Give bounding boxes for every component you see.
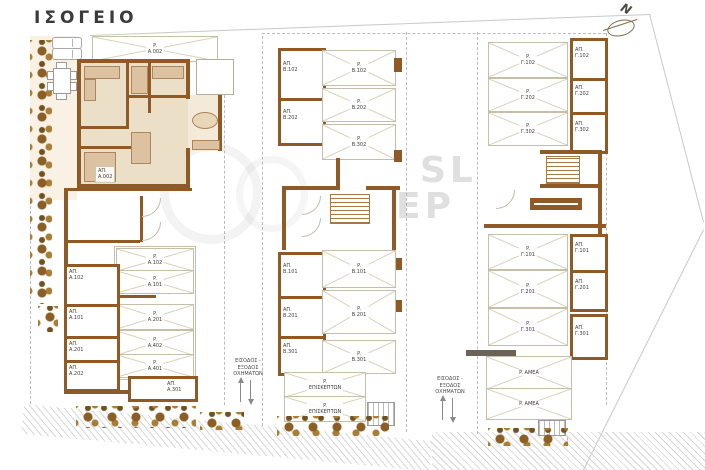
parking-space-b202: P. Β.202: [322, 88, 396, 122]
parking-space-amea-1: P. ΑΜΕΑ: [486, 356, 572, 390]
storage-room-b102: ΑΠ. Β.102: [278, 48, 326, 104]
watermark-ring2-icon: [236, 156, 308, 232]
wall-segment: [148, 63, 151, 113]
furniture-bed: [152, 66, 184, 79]
storage-room-a202: ΑΠ. A.202: [64, 360, 120, 392]
vehicle-entrance-label-right: ΕΙΣΟΔΟΣ - ΕΞΟΔΟΣ ΟΧΗΜΑΤΩΝ: [420, 376, 480, 396]
dashed-line-aisle4: [477, 32, 478, 434]
wall-segment: [77, 59, 190, 63]
furniture-sofa: [84, 66, 120, 79]
wall-segment: [282, 186, 340, 190]
storage-room-c301: ΑΠ. Γ.301: [570, 314, 608, 360]
pavement-hatch-right: [432, 432, 705, 470]
storage-room-c101: ΑΠ. Γ.101: [570, 234, 608, 274]
dashed-line-top: [262, 33, 606, 34]
parking-space-b101: P. Β.101: [322, 250, 396, 288]
storage-room-b202: ΑΠ. Β.202: [278, 98, 326, 146]
wall-segment: [282, 190, 286, 250]
entrance-arrow-up-icon: [240, 380, 241, 402]
parking-space-c302: P. Γ.302: [488, 112, 568, 146]
furniture-wardrobe: [131, 132, 151, 164]
chair: [70, 71, 77, 80]
wall-segment: [64, 188, 192, 191]
parking-space-a102: P. A.102: [116, 248, 194, 272]
furniture-kitchen-counter: [192, 140, 220, 150]
wall-segment: [540, 150, 602, 154]
door-arc-icon: [142, 222, 161, 241]
storage-room-c102: ΑΠ. Γ.102: [570, 38, 608, 82]
storage-room-b201: ΑΠ. Β.201: [278, 296, 326, 340]
entrance-arrow-down-icon: [250, 380, 251, 402]
door-arc-icon: [142, 198, 161, 217]
wall-segment: [186, 148, 190, 188]
chair: [56, 62, 67, 69]
chair: [47, 71, 54, 80]
chair: [56, 93, 67, 100]
parking-space-b302: P. Β.302: [322, 124, 396, 160]
wall-segment: [77, 59, 81, 188]
shrub-row-4: [488, 428, 568, 446]
door-arc-icon: [302, 218, 321, 237]
parking-space-a402: P. A.402: [116, 330, 194, 356]
staircase: [546, 156, 580, 184]
parking-space-c101: P. Γ.101: [488, 234, 568, 270]
wall-segment: [64, 240, 140, 243]
storage-room-a102: ΑΠ. A.102: [64, 264, 120, 308]
parking-space-c201: P. Γ.201: [488, 270, 568, 308]
wall-segment: [186, 59, 190, 99]
site-boundary-right: [649, 14, 704, 222]
parking-space-a401: P. A.401: [116, 354, 194, 378]
watermark-text-1: SL: [420, 150, 477, 191]
parking-space-c301: P. Γ.301: [488, 308, 568, 346]
car-windshield-icon: [72, 39, 73, 47]
ramp-line-icon: [534, 203, 578, 205]
parking-space-b201: P. Β.201: [322, 290, 396, 334]
staircase: [330, 194, 370, 224]
dashed-line-aisle1: [224, 80, 225, 405]
apartment-porch: [196, 59, 234, 95]
wall-segment: [116, 295, 156, 298]
storage-room-b101: ΑΠ. Β.101: [278, 252, 326, 300]
tree-cluster-small: [38, 306, 58, 332]
chair: [47, 82, 54, 91]
door-arc-icon: [302, 196, 321, 215]
shrub-row-2: [200, 412, 244, 430]
wall-stub: [394, 150, 402, 162]
parking-space-a201: P. A.201: [116, 304, 194, 330]
wall-segment: [336, 158, 340, 188]
shrub-row-1: [76, 406, 196, 428]
wall-segment: [392, 190, 396, 252]
parking-space-a101: P. A.101: [116, 270, 194, 294]
wall-stub: [394, 58, 402, 72]
door-arc-icon: [496, 190, 515, 209]
entrance-arrow-down-icon: [452, 398, 453, 420]
chair: [70, 82, 77, 91]
storage-room-c201: ΑΠ. Γ.201: [570, 270, 608, 312]
vehicle-entrance-label-left: ΕΙΣΟΔΟΣ - ΕΞΟΔΟΣ ΟΧΗΜΑΤΩΝ: [218, 358, 278, 378]
storage-room-c302: ΑΠ. Γ.302: [570, 112, 608, 154]
dashed-line-aisle3: [406, 32, 407, 432]
wall-segment: [598, 150, 602, 234]
entrance-arrow-up-icon: [442, 398, 443, 420]
floor-plan-canvas: ΙΣΟΓΕΙΟ N SL ΕΡ P. A.002: [0, 0, 705, 470]
storage-room-b301: ΑΠ. Β.301: [278, 336, 326, 376]
furniture-sofa: [84, 79, 96, 101]
parking-space-visitors-1: P. ΕΠΙΣΚΕΠΤΩΝ: [284, 372, 366, 398]
wall-segment: [540, 184, 602, 188]
furniture-bed: [131, 66, 148, 94]
parking-space-amea-2: P. ΑΜΕΑ: [486, 388, 572, 420]
storage-room-c202: ΑΠ. Γ.202: [570, 78, 608, 116]
parking-space-b301: P. Β.301: [322, 340, 396, 374]
car-windshield-icon: [72, 50, 73, 58]
storage-room-a301: ΑΠ. A.301: [128, 376, 198, 402]
patio-table: [53, 68, 71, 94]
apartment-unit-label: ΑΠ. A.002: [95, 166, 115, 183]
parking-space-b102: P. Β.102: [322, 50, 396, 86]
entrance-ramp: [530, 198, 582, 210]
wall-segment: [484, 224, 606, 228]
watermark-text-2: ΕΡ: [396, 186, 455, 227]
page-title: ΙΣΟΓΕΙΟ: [34, 8, 138, 28]
wall-segment: [126, 95, 190, 98]
shrub-row-3: [277, 416, 389, 436]
parking-space-c102: P. Γ.102: [488, 42, 568, 78]
wall-segment: [81, 126, 129, 129]
parking-space-c202: P. Γ.202: [488, 78, 568, 112]
furniture-dining-table: [192, 112, 218, 129]
storage-room-a101: ΑΠ. A.101: [64, 304, 120, 340]
